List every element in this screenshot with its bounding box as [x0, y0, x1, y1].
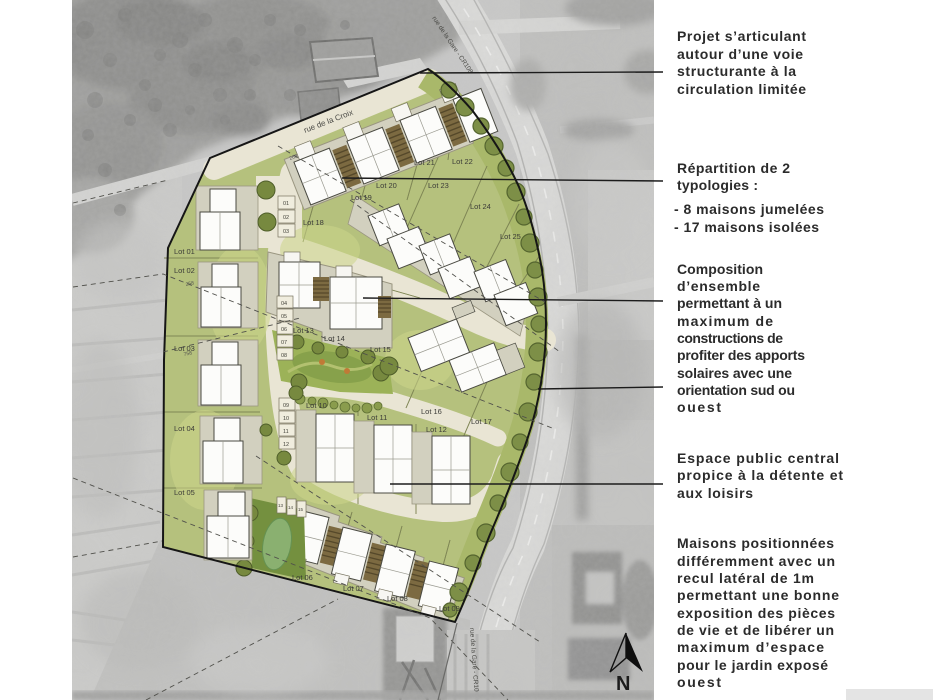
svg-text:exposition des pièces: exposition des pièces	[677, 605, 835, 621]
svg-text:Lot 19: Lot 19	[351, 193, 372, 202]
svg-text:structurante à la: structurante à la	[677, 63, 796, 79]
svg-text:- 8 maisons jumelées: - 8 maisons jumelées	[674, 201, 824, 217]
svg-text:05: 05	[281, 314, 287, 320]
svg-text:Lot 06: Lot 06	[292, 573, 313, 582]
svg-text:10: 10	[283, 416, 289, 422]
svg-text:Lot 18: Lot 18	[303, 218, 324, 227]
svg-text:14: 14	[288, 505, 294, 510]
svg-text:12: 12	[283, 442, 289, 448]
svg-text:09: 09	[283, 403, 289, 409]
svg-text:Lot 01: Lot 01	[174, 247, 195, 256]
svg-text:13: 13	[278, 503, 284, 508]
svg-text:Lot 12: Lot 12	[426, 425, 447, 434]
svg-text:06: 06	[281, 327, 287, 333]
svg-text:Projet s’articulant: Projet s’articulant	[677, 28, 806, 44]
svg-text:Lot 24: Lot 24	[470, 202, 491, 211]
svg-text:03: 03	[283, 229, 289, 235]
svg-text:15: 15	[298, 507, 304, 512]
svg-text:Lot 09: Lot 09	[439, 604, 460, 613]
svg-text:Répartition de 2: Répartition de 2	[677, 160, 790, 176]
svg-text:Lot 25: Lot 25	[500, 232, 521, 241]
svg-text:Lot 04: Lot 04	[174, 424, 195, 433]
svg-text:permettant une bonne: permettant une bonne	[677, 587, 839, 603]
svg-text:Lot 11: Lot 11	[367, 413, 387, 422]
svg-text:de vie et de libérer un: de vie et de libérer un	[677, 622, 834, 638]
svg-text:Espace public central: Espace public central	[677, 450, 839, 466]
svg-text:Lot 14: Lot 14	[324, 334, 345, 343]
svg-text:Lot 23: Lot 23	[428, 181, 449, 190]
svg-text:Lot 22: Lot 22	[452, 157, 473, 166]
svg-text:04: 04	[281, 301, 287, 307]
svg-text:11: 11	[283, 429, 289, 435]
svg-text:recul latéral de 1m: recul latéral de 1m	[677, 570, 814, 586]
svg-text:07: 07	[281, 340, 287, 346]
svg-text:profiter des apports: profiter des apports	[677, 347, 805, 363]
svg-text:aux loisirs: aux loisirs	[677, 485, 753, 501]
svg-text:Lot 20: Lot 20	[376, 181, 397, 190]
svg-text:02: 02	[283, 215, 289, 221]
svg-text:Lot 17: Lot 17	[471, 417, 492, 426]
svg-text:Lot 07: Lot 07	[343, 584, 364, 593]
svg-text:Composition: Composition	[677, 261, 763, 277]
svg-text:Lot 08: Lot 08	[387, 594, 408, 603]
svg-text:Lot 21: Lot 21	[414, 158, 435, 167]
svg-text:ouest: ouest	[677, 674, 721, 690]
svg-text:solaires avec une: solaires avec une	[677, 365, 792, 381]
svg-text:Lot 10: Lot 10	[306, 401, 327, 410]
svg-text:Lot 02: Lot 02	[174, 266, 195, 275]
svg-text:- 17 maisons isolées: - 17 maisons isolées	[674, 219, 819, 235]
svg-text:Maisons positionnées: Maisons positionnées	[677, 535, 834, 551]
svg-text:Lot 05: Lot 05	[174, 488, 195, 497]
svg-text:N: N	[616, 673, 630, 695]
svg-text:autour d’une voie: autour d’une voie	[677, 46, 803, 62]
svg-text:maximum d’espace: maximum d’espace	[677, 639, 824, 655]
svg-text:pour le jardin exposé: pour le jardin exposé	[677, 657, 828, 673]
svg-text:Lot 16: Lot 16	[421, 407, 442, 416]
svg-text:orientation sud ou: orientation sud ou	[677, 382, 795, 398]
svg-text:typologies :: typologies :	[677, 177, 758, 193]
svg-text:permettant à un: permettant à un	[677, 295, 782, 311]
svg-text:ouest: ouest	[677, 399, 721, 415]
svg-text:circulation limitée: circulation limitée	[677, 81, 806, 97]
svg-text:différemment avec un: différemment avec un	[677, 553, 835, 569]
svg-text:propice à la détente et: propice à la détente et	[677, 467, 843, 483]
svg-text:maximum de: maximum de	[677, 313, 773, 329]
svg-text:Lot 13: Lot 13	[293, 326, 314, 335]
svg-text:08: 08	[281, 353, 287, 359]
svg-text:constructions de: constructions de	[677, 330, 783, 346]
svg-text:Lot 15: Lot 15	[370, 345, 391, 354]
svg-text:01: 01	[283, 201, 289, 207]
svg-text:d’ensemble: d’ensemble	[677, 278, 760, 294]
